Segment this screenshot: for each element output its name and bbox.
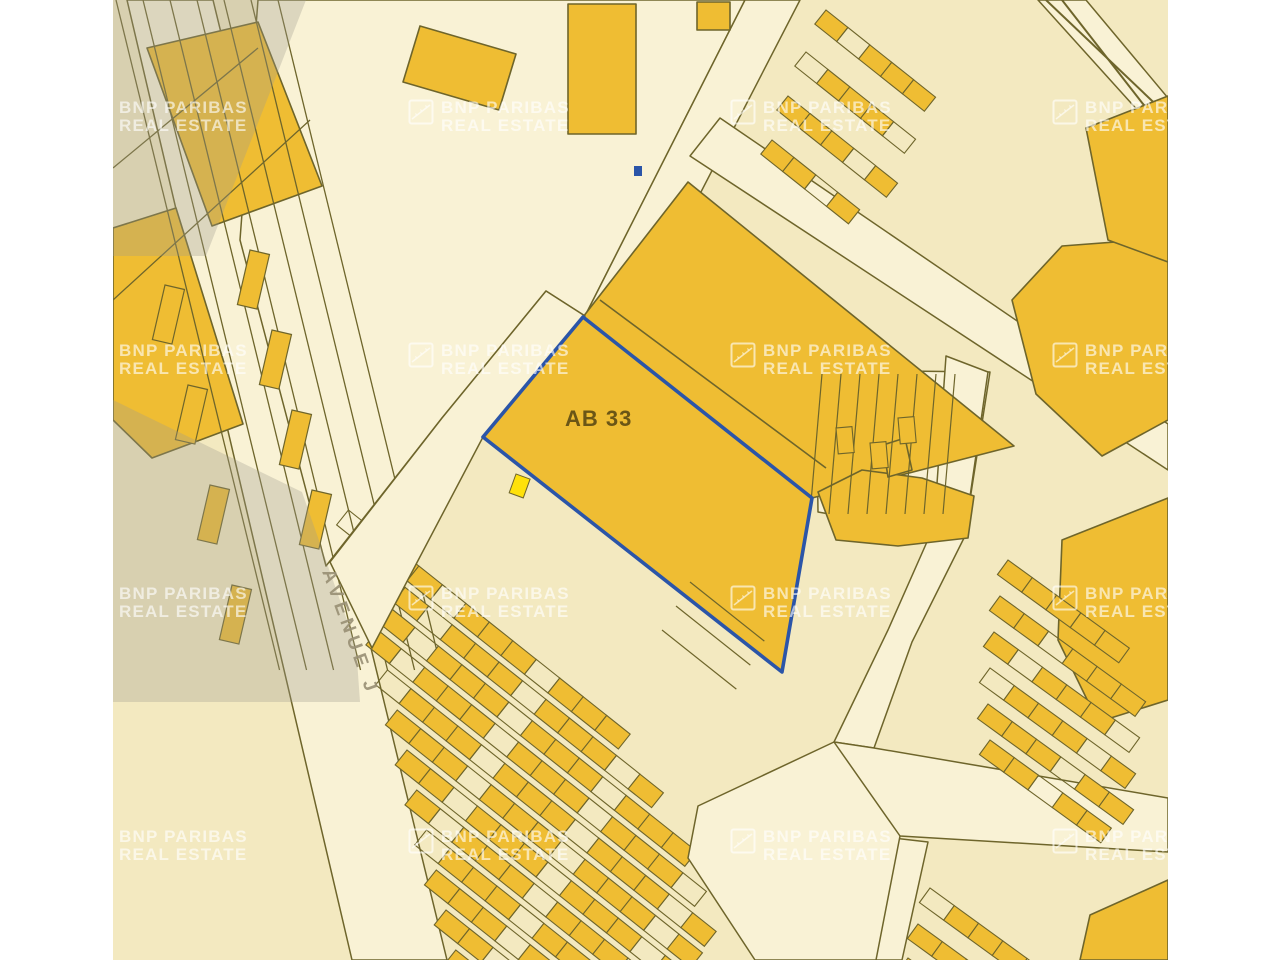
map-canvas: [113, 0, 1168, 960]
map-viewport[interactable]: AB 33 AVENUE J BNP PARIBASREAL ESTATE BN…: [113, 0, 1168, 960]
left-margin: [0, 0, 113, 960]
right-margin: [1168, 0, 1280, 960]
cadastral-map-page: AB 33 AVENUE J BNP PARIBASREAL ESTATE BN…: [0, 0, 1280, 960]
parcel-label: AB 33: [565, 406, 632, 432]
